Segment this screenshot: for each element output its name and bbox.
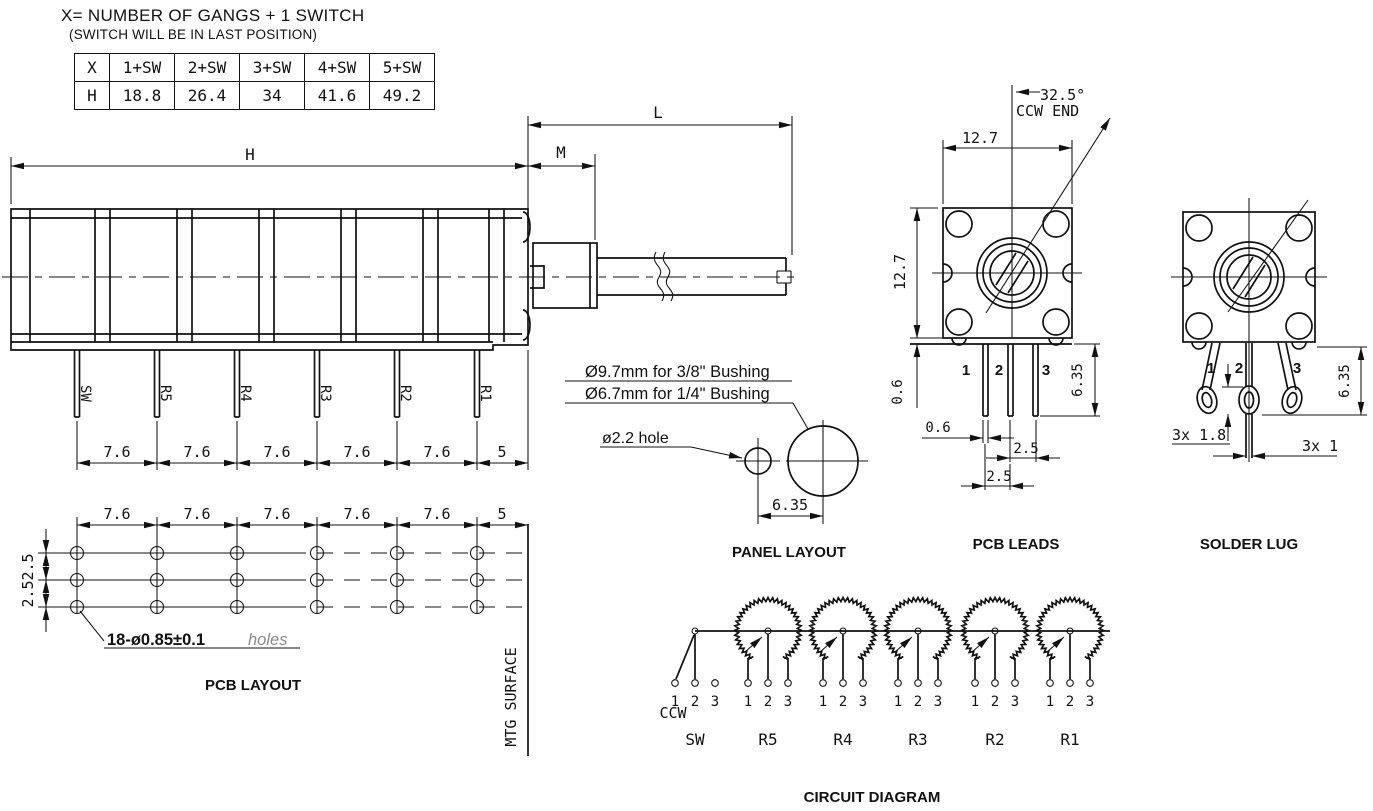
terminal-dot	[745, 680, 752, 687]
pitch-label: 7.6	[423, 505, 450, 523]
unit-label-r4: R4	[833, 730, 852, 749]
pin-number: 2	[995, 362, 1003, 379]
terminal-number: 1	[744, 694, 752, 710]
terminal-dot	[1047, 680, 1054, 687]
pitch-label: 7.6	[183, 443, 210, 461]
dim-pin-width: 0.6	[925, 420, 950, 436]
pin-number: 2	[1235, 360, 1243, 377]
terminal-number: 2	[914, 694, 922, 710]
terminal-number: 3	[934, 694, 942, 710]
holes-note-word: holes	[248, 631, 287, 649]
solder-lug-title: SOLDER LUG	[1200, 536, 1298, 553]
side-view: H M L SW R5 R4 R3 R2 R1 7.6 7.6 7.6 7.6 …	[2, 103, 800, 470]
ccw-label: CCW	[659, 704, 687, 722]
dim-label-l: L	[653, 103, 663, 122]
pcb-leads-view: 32.5° CCW END 12.7 12.7 0.6 0.6 6.35 2.5…	[890, 85, 1110, 553]
holes-note: 18-ø0.85±0.1	[107, 631, 205, 649]
dim-label-m: M	[556, 143, 566, 162]
terminal-number: 1	[971, 694, 979, 710]
circuit-diagram: 1 2 3 1 2 3 1 2 3 1 2 3 1 2 3 1 2 3 CCW …	[659, 628, 1110, 806]
terminal-number: 2	[1066, 694, 1074, 710]
pitch-label: 7.6	[103, 443, 130, 461]
dim-lug-hole: 3x 1.8	[1172, 426, 1226, 444]
dim-seat: 0.6	[890, 379, 906, 404]
lead-label-r4: R4	[237, 385, 253, 402]
bushing-note-1: Ø9.7mm for 3/8" Bushing	[585, 363, 770, 381]
pitch-label: 7.6	[263, 443, 290, 461]
terminal-number: 1	[819, 694, 827, 710]
pin-number: 3	[1042, 362, 1050, 379]
dim-6-35: 6.35	[772, 496, 808, 514]
pcb-leads-title: PCB LEADS	[973, 536, 1060, 553]
pin-number: 3	[1293, 360, 1301, 377]
drawing-canvas: H M L SW R5 R4 R3 R2 R1 7.6 7.6 7.6 7.6 …	[0, 0, 1373, 811]
unit-label-r3: R3	[908, 730, 927, 749]
terminal-dot	[1067, 680, 1074, 687]
pin-number: 1	[1207, 360, 1215, 377]
potentiometer-drawing-page: X= NUMBER OF GANGS + 1 SWITCH (SWITCH WI…	[0, 0, 1373, 811]
panel-layout-view: Ø9.7mm for 3/8" Bushing Ø6.7mm for 1/4" …	[565, 363, 868, 561]
unit-label-r5: R5	[758, 730, 777, 749]
pitch-label: 7.6	[183, 505, 210, 523]
terminal-number: 1	[894, 694, 902, 710]
dim-pitch-12: 2.5	[986, 469, 1011, 485]
pitch-label: 5	[497, 443, 506, 461]
panel-layout-title: PANEL LAYOUT	[732, 544, 846, 561]
terminal-number: 3	[1086, 694, 1094, 710]
terminal-dot	[785, 680, 792, 687]
unit-label-r1: R1	[1060, 730, 1079, 749]
circuit-diagram-title: CIRCUIT DIAGRAM	[804, 789, 941, 806]
dim-lug-thickness: 3x 1	[1302, 437, 1338, 455]
terminal-number: 3	[784, 694, 792, 710]
lead-label-r2: R2	[397, 385, 413, 402]
terminal-dot	[915, 680, 922, 687]
dim-height: 12.7	[891, 254, 909, 290]
mtg-surface-label: MTG SURFACE	[502, 647, 520, 746]
pitch-label: 7.6	[423, 443, 450, 461]
switch-blade	[676, 635, 694, 679]
linework	[820, 637, 837, 652]
dim-width: 12.7	[962, 129, 998, 147]
pcb-layout-title: PCB LAYOUT	[205, 677, 301, 694]
linework	[1047, 637, 1064, 652]
terminal-dot	[840, 680, 847, 687]
terminal-number: 1	[1046, 694, 1054, 710]
pitch-label: 7.6	[343, 505, 370, 523]
terminal-dot	[765, 680, 772, 687]
row-pitch-label: 2.5	[19, 553, 37, 580]
lead-label-r3: R3	[317, 385, 333, 402]
terminal-dot	[860, 680, 867, 687]
terminal-number: 2	[691, 694, 699, 710]
row-pitch-label: 2.5	[19, 580, 37, 607]
dim-pin-length: 6.35	[1070, 363, 1086, 397]
dim-label-h: H	[245, 145, 255, 164]
pitch-label: 7.6	[343, 443, 370, 461]
terminal-number: 3	[1011, 694, 1019, 710]
terminal-number: 2	[839, 694, 847, 710]
linework	[895, 637, 912, 652]
terminal-dot	[895, 680, 902, 687]
terminal-number: 2	[764, 694, 772, 710]
ccw-end-label: CCW END	[1016, 102, 1079, 120]
terminal-dot	[1012, 680, 1019, 687]
pcb-layout-view: 2.5 2.5 7.6 7.6 7.6 7.6 7.6 5 18-ø0.85±0…	[19, 505, 528, 756]
lead-label-r1: R1	[477, 385, 493, 402]
linework	[745, 637, 762, 652]
unit-label-r2: R2	[985, 730, 1004, 749]
ccw-end-leader	[986, 118, 1110, 313]
pitch-label: 7.6	[103, 505, 130, 523]
hole-note: ø2.2 hole	[602, 430, 669, 447]
lead-label-r5: R5	[157, 385, 173, 402]
terminal-dot	[820, 680, 827, 687]
linework	[972, 637, 989, 652]
terminal-number: 2	[991, 694, 999, 710]
dim-lug-length: 6.35	[1337, 364, 1353, 398]
terminal-dot	[972, 680, 979, 687]
pitch-label: 7.6	[263, 505, 290, 523]
terminal-number: 3	[859, 694, 867, 710]
pin-number: 1	[962, 362, 970, 379]
terminal-dot	[1087, 680, 1094, 687]
pitch-label: 5	[497, 505, 506, 523]
lead-label-sw: SW	[77, 385, 93, 402]
solder-lug-view: 1 2 3 6.35 3x 1.8 3x 1 SOLDER LUG	[1171, 198, 1367, 553]
unit-label-sw: SW	[685, 730, 705, 749]
dim-pitch-23: 2.5	[1013, 441, 1038, 457]
bushing-note-2: Ø6.7mm for 1/4" Bushing	[585, 385, 770, 403]
terminal-dot	[992, 680, 999, 687]
terminal-dot	[935, 680, 942, 687]
terminal-number: 3	[711, 694, 719, 710]
